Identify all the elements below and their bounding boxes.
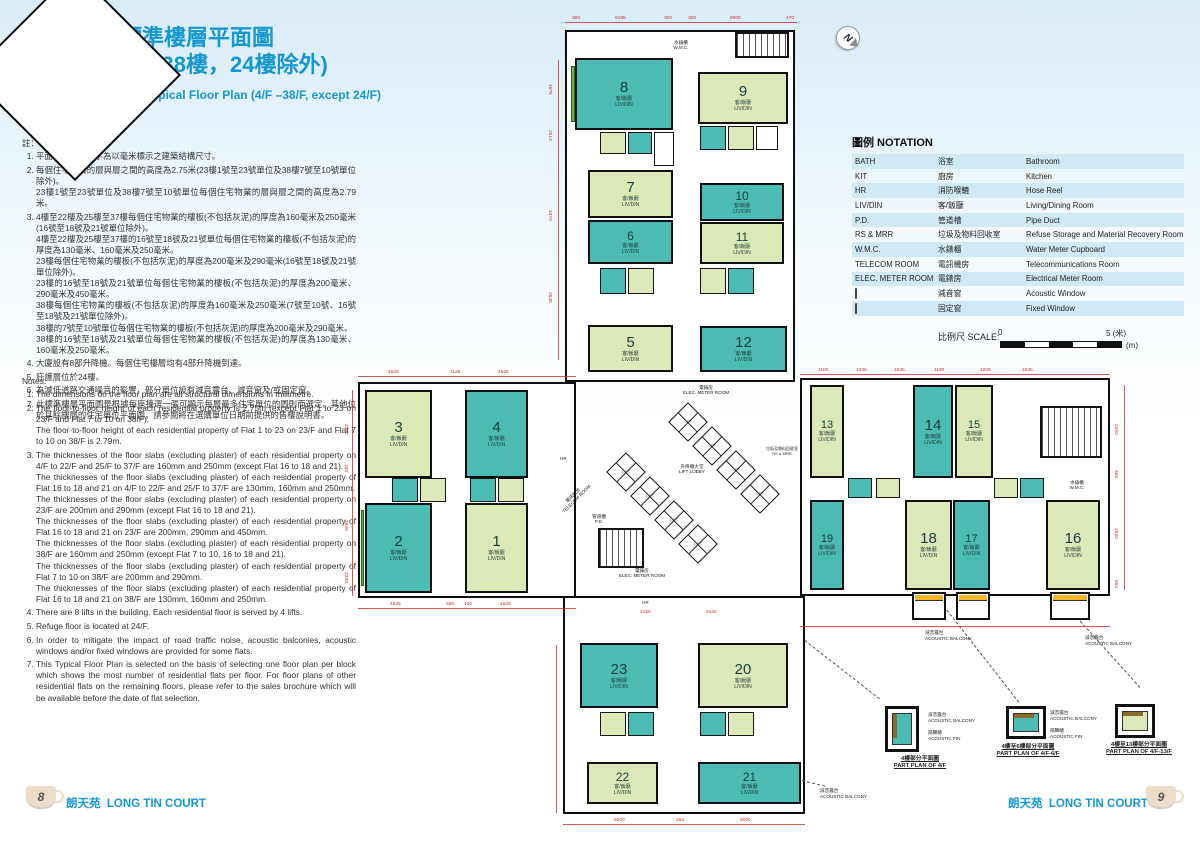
livdin-label: 客/飯廳LIV/DIN xyxy=(390,551,408,562)
dimension-line xyxy=(558,60,559,360)
flat-unit-18: 18客/飯廳LIV/DIN xyxy=(905,500,952,590)
dimension-line xyxy=(800,374,1110,375)
lift-label: LIFT xyxy=(661,507,687,533)
part-plan-4f xyxy=(885,706,919,752)
flat-number: 23 xyxy=(611,661,628,678)
page-number-cup-right: 9 xyxy=(1146,786,1176,807)
livdin-label: 客/飯廳LIV/DIN xyxy=(488,551,506,562)
acoustic-balcony-label: 減音露台ACOUSTIC BALCONY xyxy=(1085,635,1132,646)
livdin-label: 客/飯廳LIV/DIN xyxy=(924,435,942,446)
lift-label: LIFT xyxy=(675,409,701,435)
utility-room xyxy=(700,268,726,294)
flat-unit-20: 20客/飯廳LIV/DIN xyxy=(698,643,788,708)
dimension-label: 2440 xyxy=(706,610,717,615)
utility-room xyxy=(600,132,626,154)
livdin-label: 客/飯廳LIV/DIN xyxy=(622,197,640,208)
dimension-label: 2330 xyxy=(343,572,348,583)
livdin-label: 客/飯廳LIV/DIN xyxy=(614,785,632,796)
flat-unit-9: 9客/飯廳LIV/DIN xyxy=(698,72,788,124)
page-number-cup-left: 8 xyxy=(26,786,56,807)
utility-room xyxy=(654,132,674,166)
dimension-label: 4525 xyxy=(390,602,401,607)
flat-number: 6 xyxy=(627,229,634,243)
dimension-line xyxy=(358,608,576,609)
flat-number: 21 xyxy=(743,770,756,784)
dimension-line xyxy=(565,22,797,23)
utility-room xyxy=(392,478,418,502)
dimension-label: 1035 xyxy=(856,368,867,373)
leader-line xyxy=(804,640,879,699)
part-plan-4f-6f xyxy=(1006,706,1046,739)
flat-unit-3: 3客/飯廳LIV/DIN xyxy=(365,390,432,478)
dimension-label: 250 xyxy=(446,602,454,607)
flat-unit-21: 21客/飯廳LIV/DIN xyxy=(698,762,801,804)
utility-room xyxy=(728,712,754,736)
elec-meter-room-label-bottom: 電錶房ELEC. METER ROOM xyxy=(612,568,672,579)
flat-number: 20 xyxy=(735,661,752,678)
lift-label: LIFT xyxy=(699,433,725,459)
part-plan-4f-13f-caption: 4樓至13樓部分平面圖PART PLAN OF 4/F-13/F xyxy=(1098,742,1180,756)
flat-unit-15: 15客/飯廳LIV/DIN xyxy=(955,385,993,478)
livdin-label: 客/飯廳LIV/DIN xyxy=(488,437,506,448)
dimension-label: 6185 xyxy=(615,16,626,21)
flat-number: 19 xyxy=(821,533,833,545)
dimension-label: 2250 xyxy=(1113,424,1118,435)
dimension-label: 2535 xyxy=(547,292,552,303)
flat-number: 5 xyxy=(626,334,634,351)
flat-number: 18 xyxy=(920,530,937,547)
flat-number: 14 xyxy=(925,417,942,434)
utility-room xyxy=(628,132,652,154)
dimension-line xyxy=(352,390,353,596)
flat-number: 17 xyxy=(965,533,977,545)
flat-unit-5: 5客/飯廳LIV/DIN xyxy=(588,325,673,372)
dimension-label: 1190 xyxy=(934,368,944,373)
dimension-line xyxy=(1124,385,1125,590)
dimension-label: 2930 xyxy=(1113,528,1118,539)
acoustic-balcony-label: 減音露台ACOUSTIC BALCONY xyxy=(928,712,975,723)
utility-room xyxy=(600,268,626,294)
fixed-window-strip xyxy=(1053,595,1087,601)
dimension-label: 2150 xyxy=(640,610,651,615)
dimension-line xyxy=(358,376,576,377)
utility-room xyxy=(876,478,900,498)
rs-mrr-label: 垃圾及物料回收室RS & MRR xyxy=(752,446,812,457)
livdin-label: 客/飯廳LIV/DIN xyxy=(734,101,752,112)
dimension-label: 4525 xyxy=(388,370,399,375)
dimension-label: 320 xyxy=(688,16,696,21)
utility-room xyxy=(994,478,1018,498)
flat-number: 11 xyxy=(736,230,748,244)
acoustic-fin-label: 隔聲鰭ACOUSTIC FIN xyxy=(928,730,960,741)
acoustic-balcony xyxy=(1050,592,1090,620)
acoustic-balcony-detail xyxy=(1123,712,1143,716)
footer-estate-name-left: 朗天苑 LONG TIN COURT xyxy=(66,795,206,811)
flat-unit-23: 23客/飯廳LIV/DIN xyxy=(580,643,658,708)
livdin-label: 客/飯廳LIV/DIN xyxy=(963,546,981,557)
part-plan-4f-6f-caption: 4樓至6樓部分平面圖PART PLAN OF 4/F-6/F xyxy=(990,744,1066,758)
fixed-window-strip xyxy=(915,595,943,601)
dimension-label: 470 xyxy=(786,16,794,21)
dimension-label: 6000 xyxy=(740,818,751,823)
dimension-label: 1035 xyxy=(1022,368,1033,373)
flat-number: 2 xyxy=(394,533,402,550)
dimension-label: 250 xyxy=(676,818,684,823)
lift-lobby-label: 升降機大堂LIFT LOBBY xyxy=(660,464,724,475)
dimension-label: 3470 xyxy=(547,210,552,221)
flat-unit-6: 6客/飯廳LIV/DIN xyxy=(588,220,673,264)
dimension-label: 1100 xyxy=(818,368,828,373)
livdin-label: 客/飯廳LIV/DIN xyxy=(622,352,640,363)
flat-unit-1: 1客/飯廳LIV/DIN xyxy=(465,503,528,593)
hose-reel-label-1: HR xyxy=(560,456,567,461)
utility-room xyxy=(848,478,872,498)
flat-unit-8: 8客/飯廳LIV/DIN xyxy=(575,58,673,130)
utility-room xyxy=(728,268,754,294)
dimension-label: 2510 xyxy=(547,130,552,141)
flat-number: 1 xyxy=(492,533,500,550)
utility-room xyxy=(728,126,754,150)
acoustic-balcony-label: 減音露台ACOUSTIC BALCONY xyxy=(1050,710,1097,721)
utility-room xyxy=(1020,478,1044,498)
utility-room xyxy=(756,126,778,150)
lift-label: LIFT xyxy=(723,457,749,483)
acoustic-window-strip xyxy=(361,510,364,586)
dimension-label: 1035 xyxy=(894,368,905,373)
dimension-label: 1125 xyxy=(450,370,460,375)
flat-unit-17: 17客/飯廳LIV/DIN xyxy=(953,500,990,590)
flat-unit-7: 7客/飯廳LIV/DIN xyxy=(588,170,673,218)
lift-cell: LIFT xyxy=(678,524,718,564)
dimension-label: 2350 xyxy=(343,424,348,435)
livdin-label: 客/飯廳LIV/DIN xyxy=(733,245,751,256)
part-plan-4f-13f xyxy=(1115,704,1155,738)
livdin-label: 客/飯廳LIV/DIN xyxy=(390,437,408,448)
flat-unit-16: 16客/飯廳LIV/DIN xyxy=(1046,500,1100,590)
utility-room xyxy=(628,268,654,294)
livdin-label: 客/飯廳LIV/DIN xyxy=(818,432,836,443)
staircase xyxy=(598,528,644,568)
acoustic-balcony-label: 減音露台ACOUSTIC BALCONY xyxy=(925,630,972,641)
dimension-line xyxy=(800,626,1110,627)
hose-reel-label-2: HR xyxy=(642,600,649,605)
livdin-label: 客/飯廳LIV/DIN xyxy=(615,97,633,108)
dimension-label: 6000 xyxy=(614,818,625,823)
dimension-line xyxy=(563,824,805,825)
dimension-label: 300 xyxy=(572,16,580,21)
dimension-label: 6000 xyxy=(730,16,741,21)
flat-number: 3 xyxy=(394,419,402,436)
dimension-label: 4525 xyxy=(498,370,509,375)
livdin-label: 客/飯廳LIV/DIN xyxy=(622,244,640,255)
acoustic-fin-label: 隔聲鰭ACOUSTIC FIN xyxy=(1050,728,1082,739)
flat-number: 16 xyxy=(1065,530,1082,547)
livdin-label: 客/飯廳LIV/DIN xyxy=(741,785,759,796)
wmc-label-top: 水錶櫃W.M.C. xyxy=(658,40,704,51)
dimension-label: 450 xyxy=(1113,470,1118,478)
acoustic-balcony-detail xyxy=(1014,714,1034,718)
flat-unit-11: 11客/飯廳LIV/DIN xyxy=(700,222,784,264)
lift-label: LIFT xyxy=(637,483,663,509)
livdin-label: 客/飯廳LIV/DIN xyxy=(734,679,752,690)
dimension-label: 650 xyxy=(1113,580,1118,588)
fixed-window-strip xyxy=(959,595,987,601)
dimension-label: 1200 xyxy=(980,368,991,373)
flat-unit-12: 12客/飯廳LIV/DIN xyxy=(700,326,787,372)
dimension-label: 1675 xyxy=(547,84,552,95)
flat-number: 4 xyxy=(492,419,500,436)
flat-number: 15 xyxy=(968,419,980,431)
leader-line xyxy=(802,780,826,787)
flat-number: 13 xyxy=(821,419,833,431)
livdin-label: 客/飯廳LIV/DIN xyxy=(735,352,753,363)
lift-label: LIFT xyxy=(747,481,773,507)
dimension-label: 150 xyxy=(343,464,348,472)
flat-number: 10 xyxy=(735,189,748,203)
flat-number: 8 xyxy=(620,79,628,96)
acoustic-balcony-label: 減音露台ACOUSTIC BALCONY xyxy=(820,788,867,799)
livdin-label: 客/飯廳LIV/DIN xyxy=(818,546,836,557)
utility-room xyxy=(420,478,446,502)
flat-unit-19: 19客/飯廳LIV/DIN xyxy=(810,500,844,590)
dimension-label: 2930 xyxy=(343,520,348,531)
pipe-duct-label: 管道槽P.D. xyxy=(584,514,614,525)
flat-number: 22 xyxy=(616,770,629,784)
footer-estate-name-right: 朗天苑 LONG TIN COURT xyxy=(1008,795,1148,811)
lift-core xyxy=(0,0,181,181)
flat-unit-10: 10客/飯廳LIV/DIN xyxy=(700,183,784,221)
page-number-right: 9 xyxy=(1146,786,1176,807)
acoustic-balcony xyxy=(956,592,990,620)
lift-label: LIFT xyxy=(685,531,711,557)
flat-unit-22: 22客/飯廳LIV/DIN xyxy=(587,762,658,804)
staircase xyxy=(1040,406,1102,458)
flat-unit-2: 2客/飯廳LIV/DIN xyxy=(365,503,432,593)
acoustic-balcony xyxy=(912,592,946,620)
flat-number: 9 xyxy=(739,83,747,100)
livdin-label: 客/飯廳LIV/DIN xyxy=(733,204,751,215)
livdin-label: 客/飯廳LIV/DIN xyxy=(965,432,983,443)
utility-room xyxy=(628,712,654,736)
flat-number: 7 xyxy=(626,179,634,196)
elec-meter-room-label-top: 電錶房ELEC. METER ROOM xyxy=(676,385,736,396)
dimension-label: 100 xyxy=(464,602,472,607)
lift-label: LIFT xyxy=(613,459,639,485)
wmc-label-east: 水錶櫃W.M.C. xyxy=(1054,480,1100,491)
flat-unit-4: 4客/飯廳LIV/DIN xyxy=(465,390,528,478)
dimension-line xyxy=(556,645,557,813)
flat-unit-13: 13客/飯廳LIV/DIN xyxy=(810,385,844,478)
livdin-label: 客/飯廳LIV/DIN xyxy=(610,679,628,690)
lift-cell: LIFT xyxy=(740,474,780,514)
staircase xyxy=(735,32,789,58)
utility-room xyxy=(700,126,726,150)
dimension-label: 300 xyxy=(664,16,672,21)
page-number-left: 8 xyxy=(26,786,56,807)
acoustic-balcony-detail xyxy=(893,714,897,738)
flat-unit-14: 14客/飯廳LIV/DIN xyxy=(913,385,953,478)
utility-room xyxy=(470,478,496,502)
utility-room xyxy=(600,712,626,736)
livdin-label: 客/飯廳LIV/DIN xyxy=(920,548,938,559)
livdin-label: 客/飯廳LIV/DIN xyxy=(1064,548,1082,559)
utility-room xyxy=(498,478,524,502)
flat-number: 12 xyxy=(735,334,752,351)
part-plan-4f-caption: 4樓部分平面圖PART PLAN OF 4/F xyxy=(874,756,966,770)
dimension-label: 4525 xyxy=(500,602,511,607)
utility-room xyxy=(700,712,726,736)
